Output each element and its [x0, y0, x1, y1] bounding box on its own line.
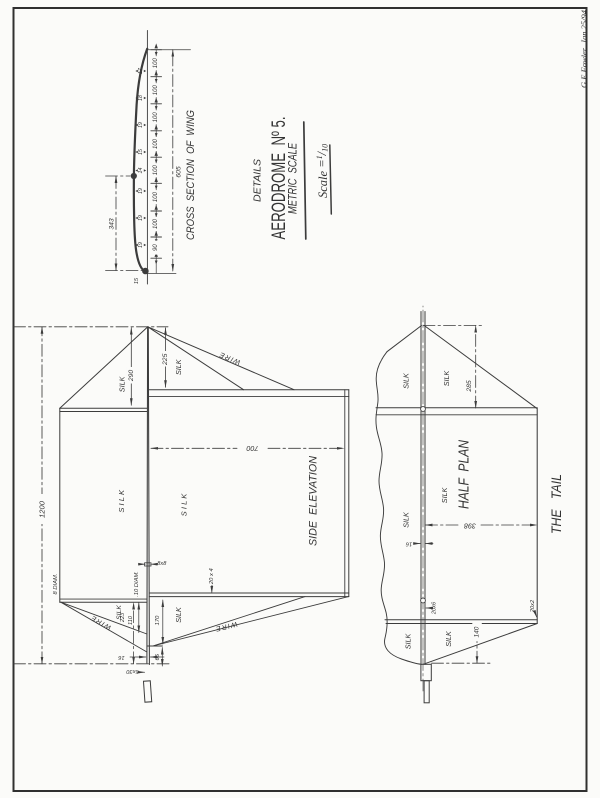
svg-text:S I L K: S I L K: [117, 489, 126, 513]
svg-text:15: 15: [138, 149, 144, 155]
svg-text:SILK: SILK: [174, 606, 183, 623]
svg-text:20x2: 20x2: [530, 599, 536, 613]
svg-text:140: 140: [474, 626, 481, 637]
svg-text:SILK: SILK: [116, 605, 123, 620]
svg-text:SILK: SILK: [442, 370, 451, 387]
svg-text:170: 170: [155, 615, 161, 625]
svg-text:110: 110: [128, 615, 134, 625]
svg-text:.10 DIAM.: .10 DIAM.: [134, 571, 140, 597]
svg-text:SILK: SILK: [404, 633, 413, 650]
svg-text:SILK: SILK: [402, 511, 411, 528]
svg-text:.20 x 4: .20 x 4: [209, 568, 215, 585]
svg-text:100: 100: [153, 58, 159, 69]
svg-text:290: 290: [128, 370, 135, 383]
svg-text:8x8: 8x8: [157, 561, 167, 567]
svg-text:METRIC SCALE: METRIC SCALE: [288, 143, 300, 214]
svg-text:398: 398: [464, 522, 476, 529]
svg-text:17: 17: [138, 67, 144, 74]
svg-text:100: 100: [153, 112, 159, 123]
svg-text:100: 100: [153, 218, 159, 229]
svg-text:1200: 1200: [38, 500, 47, 518]
svg-text:14: 14: [138, 168, 144, 174]
svg-text:SIDE ELEVATION: SIDE ELEVATION: [308, 456, 320, 546]
svg-text:19: 19: [138, 215, 144, 221]
svg-text:605: 605: [175, 166, 182, 178]
svg-text:Scale =1/10: Scale =1/10: [315, 144, 331, 198]
svg-text:SILK: SILK: [402, 372, 411, 389]
svg-text:90: 90: [153, 244, 159, 251]
svg-text:15: 15: [134, 277, 140, 284]
svg-text:SILK: SILK: [174, 358, 183, 375]
svg-text:SILK: SILK: [118, 375, 127, 392]
svg-text:100: 100: [153, 191, 159, 202]
svg-text:100: 100: [153, 138, 159, 149]
svg-text:343: 343: [109, 218, 116, 230]
svg-text:700: 700: [247, 444, 259, 453]
svg-text:SILK: SILK: [444, 630, 453, 647]
svg-text:DETAILS: DETAILS: [253, 159, 264, 202]
svg-text:HALF PLAN: HALF PLAN: [457, 440, 473, 509]
svg-text:8 DIAM.: 8 DIAM.: [53, 574, 59, 595]
svg-text:285: 285: [466, 380, 473, 393]
svg-text:5x30: 5x30: [126, 668, 139, 674]
svg-text:SILK: SILK: [440, 486, 449, 503]
svg-text:19: 19: [138, 122, 144, 128]
svg-text:100: 100: [153, 165, 159, 176]
svg-text:THE TAIL: THE TAIL: [548, 474, 564, 534]
svg-text:100: 100: [153, 85, 159, 96]
svg-text:G.E.Fowler Jan 25/94: G.E.Fowler Jan 25/94: [580, 10, 589, 88]
svg-text:18: 18: [138, 95, 144, 101]
svg-text:19: 19: [138, 188, 144, 194]
svg-text:19: 19: [138, 242, 144, 248]
svg-text:S I L K: S I L K: [180, 493, 189, 517]
svg-text:16: 16: [405, 541, 412, 547]
svg-text:CROSS SECTION OF WING: CROSS SECTION OF WING: [185, 110, 197, 240]
svg-text:225: 225: [162, 353, 169, 366]
svg-text:20x6: 20x6: [432, 601, 438, 615]
svg-text:16: 16: [118, 654, 125, 660]
